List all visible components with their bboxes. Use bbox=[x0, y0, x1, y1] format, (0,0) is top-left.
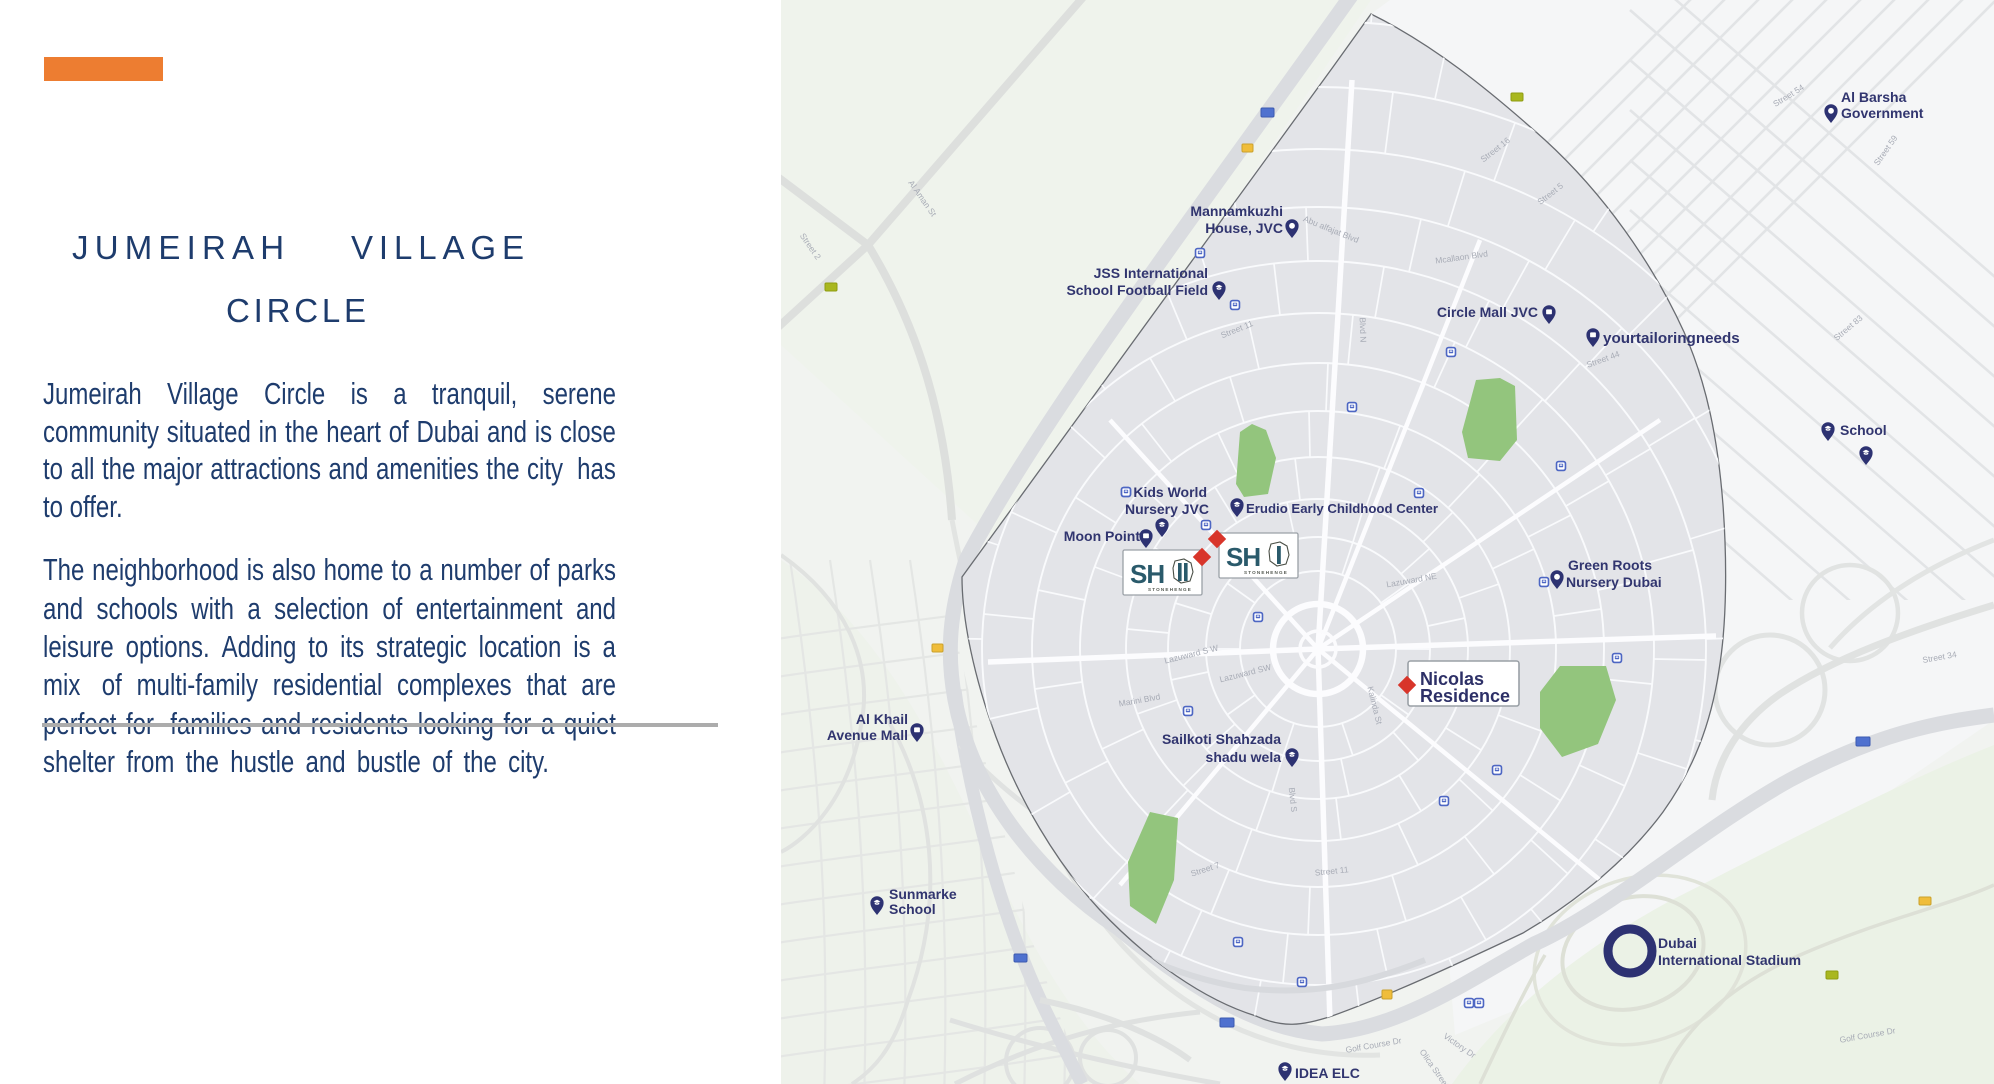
svg-text:School Football Field: School Football Field bbox=[1066, 282, 1208, 298]
svg-text:House, JVC: House, JVC bbox=[1205, 220, 1283, 236]
svg-text:SH: SH bbox=[1130, 559, 1164, 589]
svg-text:Green Roots: Green Roots bbox=[1568, 557, 1652, 573]
svg-text:STONEHENGE: STONEHENGE bbox=[1148, 587, 1192, 592]
svg-text:Al Barsha: Al Barsha bbox=[1841, 89, 1907, 105]
svg-text:Kids World: Kids World bbox=[1133, 484, 1207, 500]
svg-text:Blvd N: Blvd N bbox=[1358, 317, 1369, 342]
svg-text:Erudio Early Childhood Center: Erudio Early Childhood Center bbox=[1246, 501, 1438, 516]
svg-text:School: School bbox=[1840, 422, 1887, 438]
svg-text:Sailkoti Shahzada: Sailkoti Shahzada bbox=[1162, 731, 1281, 747]
svg-text:shadu wela: shadu wela bbox=[1206, 749, 1282, 765]
svg-text:Circle Mall JVC: Circle Mall JVC bbox=[1437, 304, 1538, 320]
svg-text:yourtailoringneeds: yourtailoringneeds bbox=[1603, 330, 1740, 347]
svg-text:Residence: Residence bbox=[1420, 686, 1510, 706]
svg-text:STONEHENGE: STONEHENGE bbox=[1244, 570, 1288, 575]
svg-text:Nursery JVC: Nursery JVC bbox=[1125, 501, 1209, 517]
svg-text:JSS International: JSS International bbox=[1094, 265, 1208, 281]
svg-text:International Stadium: International Stadium bbox=[1658, 952, 1801, 968]
svg-text:SH: SH bbox=[1226, 542, 1260, 572]
svg-text:Mannamkuzhi: Mannamkuzhi bbox=[1190, 203, 1283, 219]
svg-text:Sunmarke: Sunmarke bbox=[889, 886, 957, 902]
svg-text:Nursery Dubai: Nursery Dubai bbox=[1566, 574, 1662, 590]
svg-text:IDEA ELC: IDEA ELC bbox=[1295, 1065, 1360, 1081]
svg-text:Avenue Mall: Avenue Mall bbox=[827, 727, 908, 743]
svg-text:Dubai: Dubai bbox=[1658, 935, 1697, 951]
svg-text:Moon Point: Moon Point bbox=[1064, 528, 1141, 544]
svg-text:School: School bbox=[889, 901, 936, 917]
svg-text:Al Khail: Al Khail bbox=[856, 711, 908, 727]
svg-text:Government: Government bbox=[1841, 105, 1924, 121]
